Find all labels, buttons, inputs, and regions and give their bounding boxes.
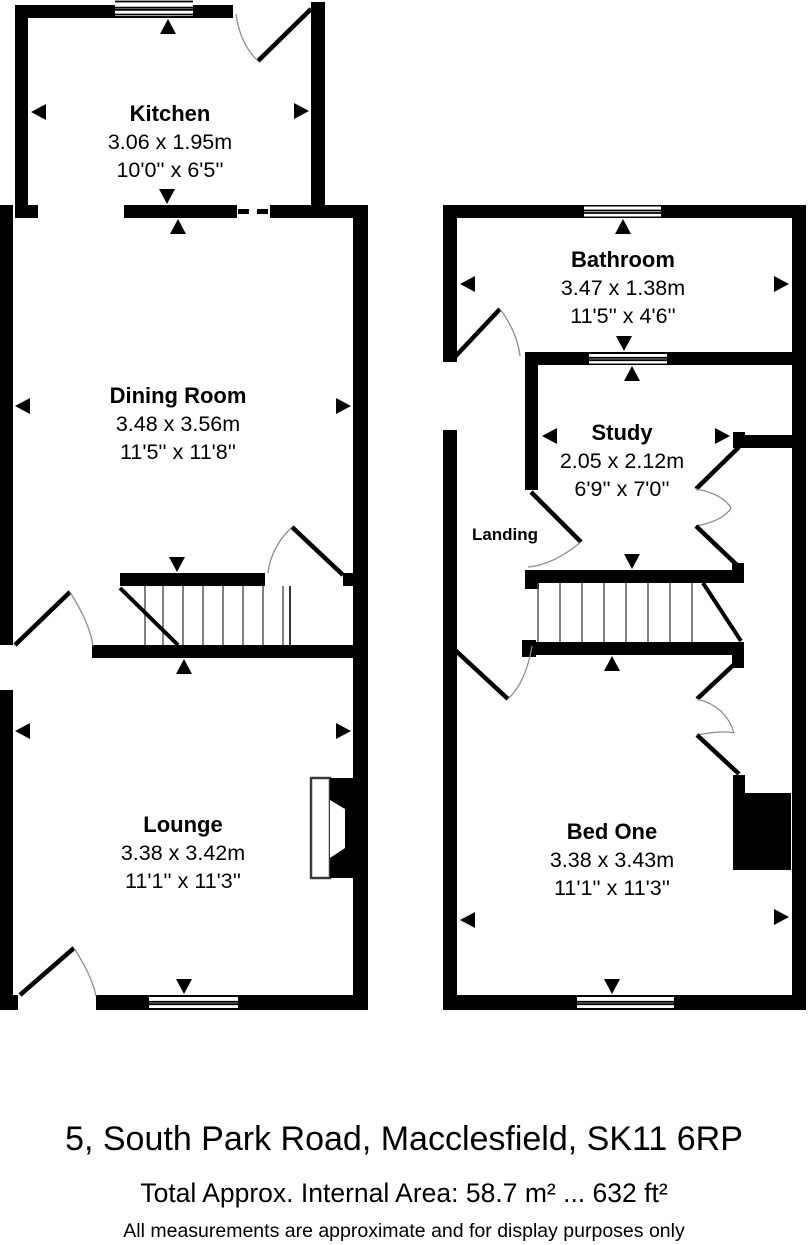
address-line: 5, South Park Road, Macclesfield, SK11 6… — [0, 1120, 808, 1159]
room-imperial-bathroom: 11'5'' x 4'6'' — [570, 304, 676, 328]
arrow-right-icon — [774, 909, 789, 925]
arrow-left-icon — [460, 276, 475, 292]
first-floor-top-window — [584, 207, 661, 217]
arrow-left-icon — [542, 428, 557, 444]
room-metric-study: 2.05 x 2.12m — [560, 449, 684, 473]
room-name-bed-one: Bed One — [567, 819, 657, 844]
room-imperial-kitchen: 10'0'' x 6'5'' — [116, 158, 223, 182]
room-metric-kitchen: 3.06 x 1.95m — [108, 130, 232, 154]
disclaimer-line: All measurements are approximate and for… — [0, 1220, 808, 1243]
room-imperial-lounge: 11'1'' x 11'3'' — [125, 869, 241, 893]
bathroom-study-window — [589, 354, 667, 364]
room-metric-lounge: 3.38 x 3.42m — [121, 841, 245, 865]
room-imperial-dining: 11'5'' x 11'8'' — [120, 440, 236, 464]
room-metric-bed-one: 3.38 x 3.43m — [550, 848, 674, 872]
arrow-down-icon — [176, 979, 192, 994]
room-metric-dining: 3.48 x 3.56m — [116, 412, 240, 436]
room-name-study: Study — [591, 420, 653, 445]
arrow-up-icon — [615, 219, 631, 234]
front-door — [15, 592, 93, 646]
arrow-left-icon — [15, 723, 30, 739]
room-name-bathroom: Bathroom — [571, 247, 675, 272]
arrow-left-icon — [15, 398, 30, 414]
arrow-up-icon — [624, 366, 640, 381]
arrow-left-icon — [460, 912, 475, 928]
arrow-down-icon — [169, 557, 185, 572]
floorplan-image: Kitchen 3.06 x 1.95m 10'0'' x 6'5'' Dini… — [0, 0, 808, 1080]
arrow-up-icon — [170, 219, 186, 234]
lounge-fireplace — [311, 778, 353, 878]
bathroom-door — [452, 309, 520, 360]
kitchen-window — [115, 0, 193, 16]
arrow-up-icon — [604, 656, 620, 671]
arrow-up-icon — [160, 19, 176, 34]
arrow-right-icon — [336, 723, 351, 739]
arrow-down-icon — [159, 189, 175, 204]
arrow-right-icon — [336, 398, 351, 414]
ground-floor-labels: Kitchen 3.06 x 1.95m 10'0'' x 6'5'' Dini… — [108, 101, 247, 893]
landing-label: Landing — [472, 525, 538, 544]
room-name-lounge: Lounge — [143, 812, 222, 837]
room-imperial-study: 6'9'' x 7'0'' — [574, 477, 669, 501]
arrow-right-icon — [294, 103, 309, 119]
room-metric-bathroom: 3.47 x 1.38m — [561, 276, 685, 300]
study-cupboard-doors — [696, 447, 739, 567]
first-floor-plan: Bathroom 3.47 x 1.38m 11'5'' x 4'6'' Stu… — [443, 205, 806, 1010]
arrow-down-icon — [624, 554, 640, 569]
lounge-window — [149, 997, 238, 1008]
ground-floor-stairs — [120, 586, 290, 645]
room-name-kitchen: Kitchen — [130, 101, 211, 126]
lounge-door — [20, 948, 96, 996]
arrow-right-icon — [715, 428, 730, 444]
arrow-left-icon — [31, 104, 46, 120]
bed-one-window — [577, 997, 674, 1008]
chimney-breast — [733, 793, 791, 870]
arrow-right-icon — [774, 276, 789, 292]
arrow-down-icon — [604, 979, 620, 994]
arrow-up-icon — [176, 659, 192, 674]
first-floor-stairs — [538, 583, 741, 642]
dining-room-door — [268, 527, 343, 575]
kitchen-back-door — [236, 9, 311, 61]
ground-floor-plan: Kitchen 3.06 x 1.95m 10'0'' x 6'5'' Dini… — [0, 0, 368, 1010]
room-imperial-bed-one: 11'1'' x 11'3'' — [554, 876, 670, 900]
total-area-line: Total Approx. Internal Area: 58.7 m² ...… — [0, 1178, 808, 1209]
bed-one-cupboard-doors — [697, 657, 742, 774]
arrow-down-icon — [616, 336, 632, 351]
bed-one-door — [455, 646, 532, 699]
room-name-dining: Dining Room — [110, 383, 247, 408]
